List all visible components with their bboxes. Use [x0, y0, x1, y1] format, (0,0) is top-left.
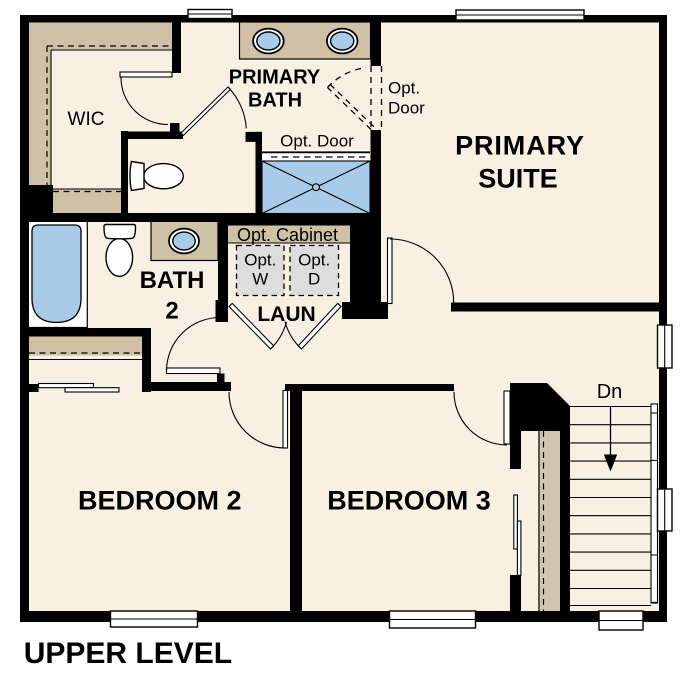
svg-text:SUITE: SUITE	[478, 164, 558, 194]
svg-text:D: D	[308, 270, 320, 289]
svg-text:BEDROOM 3: BEDROOM 3	[327, 485, 491, 515]
svg-text:Dn: Dn	[597, 381, 623, 403]
svg-text:BATH: BATH	[248, 90, 302, 112]
svg-text:UPPER LEVEL: UPPER LEVEL	[24, 637, 232, 670]
svg-text:BEDROOM 2: BEDROOM 2	[78, 485, 242, 515]
svg-text:PRIMARY: PRIMARY	[229, 67, 321, 89]
svg-text:PRIMARY: PRIMARY	[455, 131, 585, 161]
svg-text:2: 2	[165, 298, 178, 325]
svg-text:Opt.: Opt.	[388, 79, 420, 98]
svg-text:BATH: BATH	[140, 267, 205, 294]
svg-text:WIC: WIC	[68, 109, 105, 130]
svg-text:LAUN: LAUN	[257, 303, 315, 326]
svg-text:Opt.: Opt.	[298, 251, 330, 270]
svg-text:Door: Door	[388, 99, 425, 118]
svg-text:W: W	[252, 270, 268, 289]
svg-text:Opt. Door: Opt. Door	[280, 132, 354, 151]
svg-text:Opt.: Opt.	[244, 251, 276, 270]
svg-text:Opt. Cabinet: Opt. Cabinet	[237, 225, 338, 245]
